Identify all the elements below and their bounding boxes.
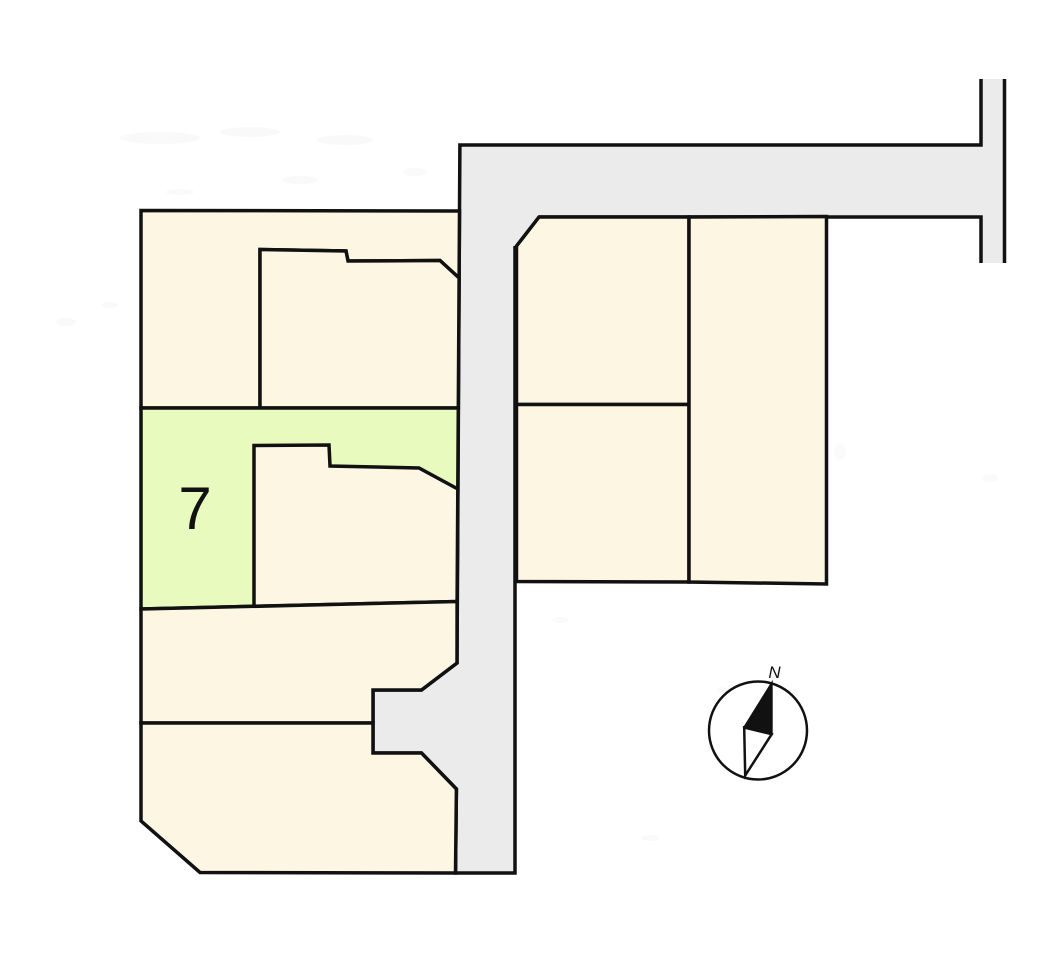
svg-text:N: N: [768, 663, 781, 682]
svg-text:7: 7: [178, 475, 211, 542]
